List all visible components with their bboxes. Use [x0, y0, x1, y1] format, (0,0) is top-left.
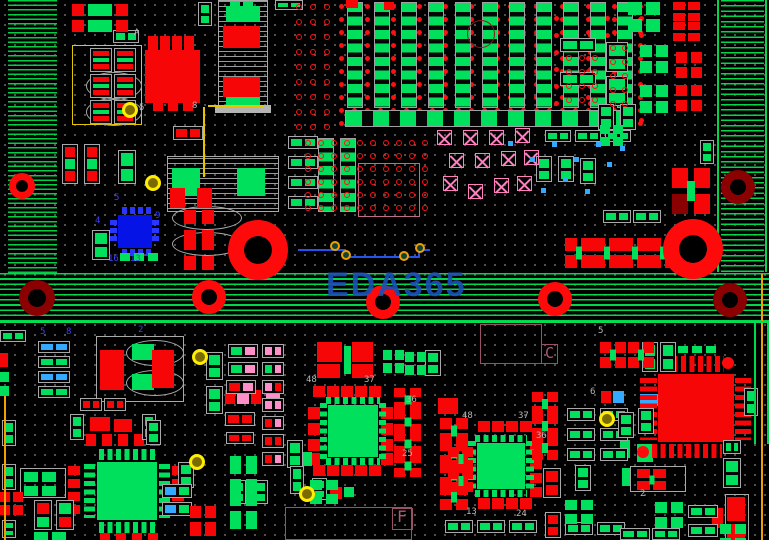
pad	[132, 344, 154, 360]
pad-quad	[676, 52, 702, 78]
pad	[623, 107, 633, 116]
pad	[37, 503, 49, 514]
pad	[117, 401, 124, 408]
pad	[68, 479, 80, 488]
via-ring	[422, 205, 428, 211]
via-ring	[310, 124, 316, 130]
smd-passive	[262, 434, 284, 448]
pad	[5, 423, 13, 432]
pad	[231, 365, 242, 373]
pad	[229, 435, 239, 441]
smd-passive	[34, 500, 52, 530]
pad	[640, 45, 652, 57]
via-ring	[592, 69, 598, 75]
pad	[672, 194, 688, 214]
via-ring	[422, 166, 428, 172]
pad	[694, 194, 710, 214]
via-ring	[310, 34, 316, 40]
via-ring	[383, 153, 389, 159]
pad	[369, 386, 381, 397]
smd-passive	[146, 420, 161, 445]
pad	[688, 22, 700, 30]
via-ring	[296, 109, 302, 115]
pad	[668, 531, 678, 537]
smd-passive	[723, 458, 741, 488]
smd-passive	[38, 371, 70, 383]
pad-quad	[100, 4, 128, 32]
highlight-via	[145, 175, 161, 191]
highlight-via	[189, 454, 205, 470]
pad	[97, 462, 157, 520]
trace-segment	[0, 321, 769, 323]
pad	[428, 365, 438, 374]
pad	[42, 472, 56, 482]
pad	[184, 210, 196, 224]
pad-quad	[637, 469, 666, 490]
pad	[237, 168, 265, 196]
pad-quad	[72, 4, 100, 32]
pad	[168, 103, 178, 111]
pad	[275, 383, 282, 391]
center-pad	[451, 492, 457, 503]
pad	[184, 236, 196, 250]
smd-passive	[723, 440, 741, 454]
pad	[512, 523, 522, 530]
pad	[56, 344, 68, 350]
via-ring	[566, 55, 572, 61]
pad	[245, 365, 256, 373]
via-ring	[296, 64, 302, 70]
via-ring	[396, 205, 402, 211]
micro-via	[541, 188, 546, 193]
pad	[132, 374, 154, 390]
pad	[581, 238, 593, 251]
pad	[87, 147, 97, 157]
nc-marker-icon	[517, 176, 532, 191]
pad	[165, 487, 176, 495]
pad	[93, 77, 109, 82]
ref-label: 48	[462, 412, 473, 421]
ref-label: 5	[598, 327, 603, 336]
pad	[107, 401, 114, 408]
pad	[641, 423, 651, 432]
pad	[209, 355, 220, 365]
pad	[600, 525, 610, 532]
pad	[265, 455, 272, 463]
pad	[202, 256, 214, 270]
pad	[601, 391, 611, 403]
pad	[146, 207, 151, 214]
pad	[581, 255, 593, 268]
pad	[655, 517, 667, 528]
via-ring	[622, 101, 628, 107]
via-ring	[331, 192, 337, 198]
via-ring	[357, 140, 363, 146]
via-ring	[396, 153, 402, 159]
pad	[223, 77, 260, 97]
center-pad	[638, 350, 644, 361]
center-pad	[632, 247, 638, 260]
via-ring	[383, 205, 389, 211]
footprint-outline	[480, 324, 542, 364]
pad	[59, 503, 71, 514]
pad	[583, 431, 593, 438]
pad	[613, 137, 623, 146]
pad	[120, 253, 130, 261]
pad-quad	[672, 168, 710, 214]
pin-row	[652, 444, 722, 458]
pad	[640, 85, 652, 97]
pad	[153, 103, 163, 111]
orange-via	[399, 251, 409, 261]
via-ring	[296, 34, 302, 40]
pin-row	[84, 464, 95, 518]
nc-marker-icon	[494, 178, 509, 193]
pad-quad	[600, 342, 626, 368]
ref-label: 2	[138, 326, 143, 335]
via-ring	[324, 34, 330, 40]
micro-via	[563, 177, 568, 182]
pad	[317, 342, 342, 362]
pad	[5, 467, 13, 476]
pad	[726, 461, 738, 472]
pad	[673, 2, 685, 10]
via-ring	[422, 192, 428, 198]
pad	[671, 517, 683, 528]
ref-label: F	[397, 509, 407, 525]
pad	[148, 533, 158, 540]
pad	[122, 207, 127, 214]
pad	[24, 472, 38, 482]
center-pad	[542, 399, 548, 409]
via-ring	[422, 153, 428, 159]
pad	[246, 511, 257, 529]
pad	[581, 500, 593, 510]
pad	[24, 486, 38, 496]
pad	[59, 517, 71, 528]
pad	[548, 133, 557, 139]
via-ring	[357, 192, 363, 198]
mounting-hole	[192, 280, 226, 314]
pad	[341, 386, 353, 397]
pad	[656, 101, 668, 113]
pad	[87, 159, 97, 169]
smd-passive	[118, 150, 136, 184]
pad	[672, 168, 688, 188]
smd-passive	[262, 380, 284, 394]
pad	[383, 363, 392, 373]
smd-passive	[162, 484, 192, 498]
smd-passive	[206, 386, 223, 414]
pad-quad	[383, 350, 404, 373]
pad	[703, 154, 711, 162]
center-pad	[458, 454, 463, 464]
pad	[245, 347, 256, 355]
nc-marker-icon	[443, 176, 458, 191]
pad	[265, 437, 272, 445]
pcb-canvas[interactable]: A854837362548373613242565916134258CF EDA…	[0, 0, 769, 540]
micro-via	[607, 162, 612, 167]
ref-label: 5	[114, 194, 119, 203]
pad	[41, 374, 53, 380]
pad	[3, 333, 12, 339]
via-ring	[370, 153, 376, 159]
pad	[438, 398, 458, 414]
pad	[93, 401, 100, 408]
pad	[640, 101, 652, 113]
pad	[395, 350, 404, 360]
pad	[653, 481, 666, 490]
via-ring	[305, 205, 311, 211]
pad	[583, 173, 593, 182]
pad-stack	[90, 100, 112, 124]
pad	[691, 527, 702, 534]
nc-marker-icon	[437, 130, 452, 145]
via-ring	[318, 140, 324, 146]
pad	[201, 5, 209, 13]
via-ring	[305, 153, 311, 159]
ref-label: 36	[406, 396, 417, 405]
pad	[615, 357, 626, 368]
pad	[65, 147, 75, 157]
pad	[100, 20, 112, 32]
pad	[72, 20, 84, 32]
smd-passive	[38, 386, 70, 398]
pad	[326, 480, 338, 490]
pad	[691, 508, 702, 515]
pad	[346, 0, 358, 8]
pad	[291, 139, 302, 146]
pad	[656, 85, 668, 97]
pad	[117, 90, 133, 95]
circle-marker	[467, 20, 495, 48]
ref-label: 37	[518, 412, 529, 421]
pad	[563, 41, 577, 49]
smd-passive	[580, 158, 596, 184]
pad-stack	[84, 144, 100, 184]
pad	[243, 13, 253, 21]
pad	[547, 414, 558, 424]
pad	[600, 137, 610, 146]
trace-segment	[754, 322, 756, 444]
passive-column	[482, 2, 498, 108]
center-pad	[610, 350, 616, 361]
via-ring	[396, 192, 402, 198]
smd-passive	[618, 412, 634, 438]
pad	[546, 485, 558, 496]
pad	[705, 508, 716, 515]
via-ring	[296, 79, 302, 85]
pad	[720, 524, 731, 534]
pad	[265, 365, 272, 373]
smd-passive	[287, 440, 303, 468]
nc-marker-icon	[449, 153, 464, 168]
pad	[561, 159, 571, 168]
pad-quad	[676, 85, 702, 111]
pad	[95, 247, 107, 258]
round-pad	[637, 446, 649, 458]
pad	[580, 75, 594, 83]
smd-passive	[567, 448, 595, 461]
ref-label: 16	[108, 255, 119, 264]
via-ring	[579, 83, 585, 89]
pad	[606, 213, 616, 220]
highlight-via	[192, 349, 208, 365]
micro-via	[508, 141, 513, 146]
pad	[242, 435, 252, 441]
via-ring	[344, 166, 350, 172]
ref-label: 5	[40, 328, 45, 337]
pad	[328, 405, 378, 457]
pad	[275, 437, 282, 445]
pad	[692, 346, 702, 353]
pad	[327, 386, 339, 397]
via-ring	[331, 205, 337, 211]
via-ring	[566, 97, 572, 103]
via-ring	[296, 94, 302, 100]
pad	[308, 407, 320, 419]
pad	[570, 431, 580, 438]
pad	[37, 517, 49, 528]
nc-marker-icon	[463, 130, 478, 145]
pad	[417, 352, 426, 362]
pad	[41, 359, 53, 365]
ref-label: A	[134, 29, 139, 38]
via-ring	[396, 179, 402, 185]
pad	[355, 465, 367, 476]
pad-quad	[565, 238, 593, 268]
watermark-text: EDA365	[326, 266, 467, 305]
pad	[149, 423, 158, 431]
pad-quad	[405, 352, 426, 375]
pad-stack	[62, 144, 78, 184]
highlight-via	[122, 102, 138, 118]
pad	[65, 171, 75, 181]
pad	[291, 199, 302, 206]
pad	[149, 434, 158, 442]
via-ring	[344, 192, 350, 198]
pad	[278, 3, 288, 7]
ref-label: 37	[364, 376, 375, 385]
pad	[246, 456, 257, 474]
pad	[73, 429, 81, 438]
pad-quad	[720, 524, 746, 540]
pad-quad	[24, 472, 56, 496]
smd-passive	[288, 136, 318, 149]
via-ring	[310, 94, 316, 100]
pad	[93, 51, 109, 56]
pad-quad	[184, 236, 214, 270]
via-ring	[370, 166, 376, 172]
pad	[580, 41, 594, 49]
center-pad	[576, 247, 582, 260]
smd-passive	[206, 352, 223, 380]
pad	[646, 2, 660, 15]
via-ring	[324, 124, 330, 130]
via-ring	[622, 59, 628, 65]
pad-stack	[90, 74, 112, 98]
micro-via	[585, 189, 590, 194]
pad	[72, 4, 84, 16]
via-ring	[370, 192, 376, 198]
pad	[663, 345, 673, 356]
pad	[93, 90, 109, 95]
pad	[56, 359, 68, 365]
pad	[548, 515, 558, 524]
right-ladder-strip	[717, 0, 769, 272]
pad	[42, 486, 56, 496]
via-ring	[622, 45, 628, 51]
pad	[640, 61, 652, 73]
pad-quad	[628, 2, 660, 32]
pad	[0, 372, 9, 382]
pad	[5, 435, 13, 444]
pad	[428, 353, 438, 362]
via-ring	[318, 205, 324, 211]
center-pad	[404, 417, 411, 426]
smd-passive	[445, 520, 473, 533]
via-ring	[422, 179, 428, 185]
smd-passive	[543, 468, 561, 498]
pad	[520, 421, 532, 432]
pad	[197, 188, 212, 208]
ref-label: 4	[95, 217, 100, 226]
pad	[656, 61, 668, 73]
pad	[643, 357, 654, 368]
micro-via	[530, 157, 535, 162]
pad	[352, 342, 373, 362]
via-ring	[344, 140, 350, 146]
via-ring	[357, 166, 363, 172]
pad	[118, 434, 128, 446]
ref-label: 5	[139, 104, 144, 113]
pad-quad	[532, 392, 558, 416]
pad	[15, 333, 24, 339]
via-ring	[592, 83, 598, 89]
pad	[405, 352, 414, 362]
pad	[628, 19, 642, 32]
pad	[56, 374, 68, 380]
pad-quad	[448, 447, 473, 470]
pad	[477, 443, 525, 489]
pin-row	[326, 397, 380, 404]
pad	[121, 169, 133, 182]
pin-row	[326, 458, 380, 465]
smd-passive	[173, 126, 203, 140]
ref-label: 9	[155, 212, 160, 221]
pad	[734, 443, 739, 451]
pad	[100, 533, 110, 540]
pad	[646, 19, 660, 32]
pad	[202, 210, 214, 224]
pad	[179, 505, 190, 513]
ref-label: 13	[466, 508, 477, 517]
pad	[93, 110, 109, 115]
smd-passive	[567, 428, 595, 441]
pad	[117, 77, 133, 82]
pad-quad	[640, 85, 668, 113]
pad	[678, 346, 688, 353]
via-ring	[310, 64, 316, 70]
pad	[478, 421, 490, 432]
pad	[726, 443, 731, 451]
pad-stack	[114, 74, 136, 98]
pad	[395, 363, 404, 373]
pad	[172, 36, 182, 50]
pad	[673, 13, 685, 21]
pad	[5, 523, 13, 528]
via-ring	[409, 140, 415, 146]
